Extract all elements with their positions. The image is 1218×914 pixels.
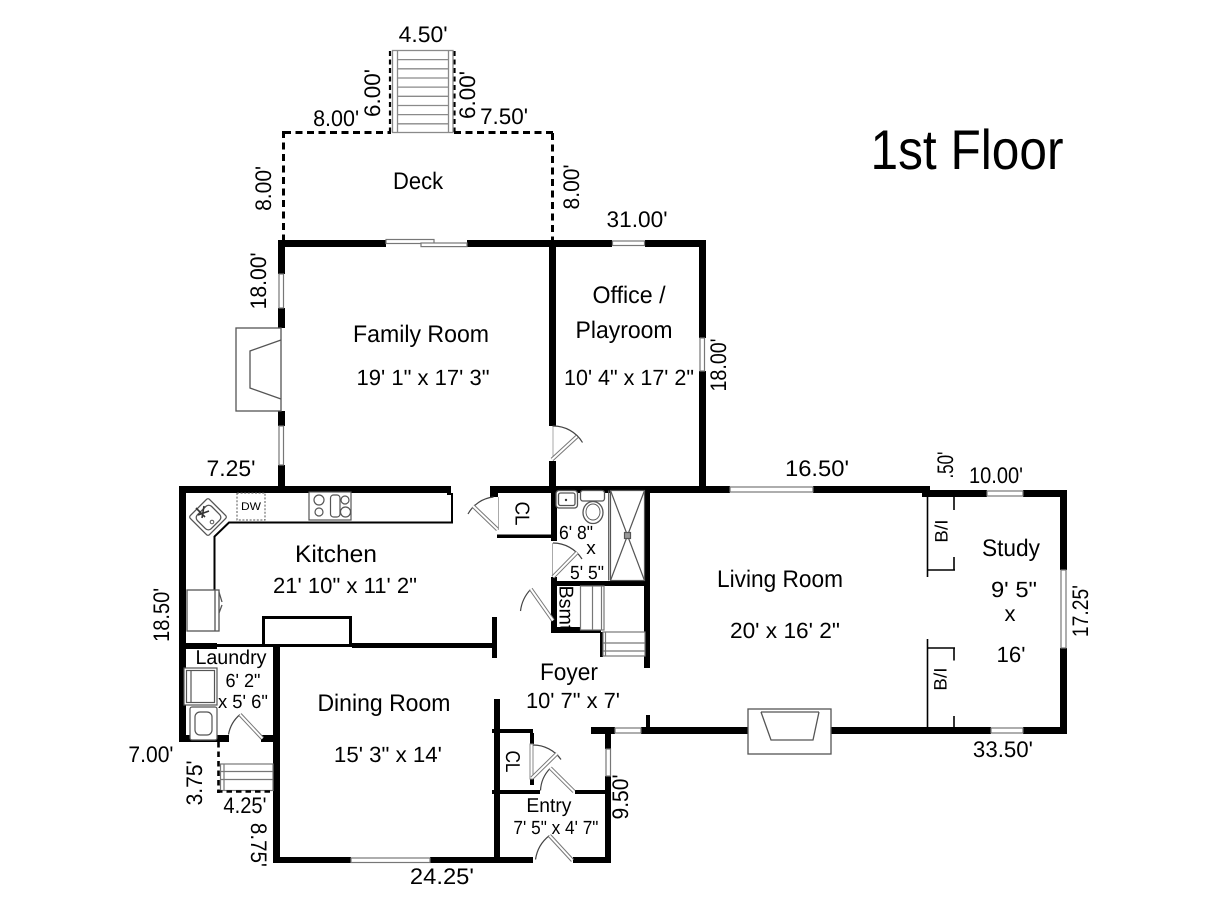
- svg-text:Kitchen: Kitchen: [295, 541, 377, 568]
- svg-text:7.50': 7.50': [480, 104, 528, 129]
- svg-text:9.50': 9.50': [608, 774, 633, 819]
- svg-text:16': 16': [996, 642, 1025, 667]
- svg-text:24.25': 24.25': [410, 864, 474, 889]
- svg-text:3.75': 3.75': [182, 760, 207, 805]
- svg-text:Foyer: Foyer: [540, 659, 598, 686]
- svg-text:Living Room: Living Room: [717, 566, 843, 593]
- svg-text:10' 7" x 7': 10' 7" x 7': [526, 688, 620, 713]
- svg-text:31.00': 31.00': [607, 207, 668, 232]
- svg-text:CL: CL: [510, 501, 532, 525]
- svg-text:Playroom: Playroom: [576, 317, 673, 344]
- svg-text:6.00': 6.00': [455, 71, 480, 119]
- svg-text:17.25': 17.25': [1068, 585, 1093, 637]
- svg-text:x 5' 6": x 5' 6": [218, 692, 268, 713]
- svg-text:18.50': 18.50': [149, 588, 174, 642]
- svg-text:Dining Room: Dining Room: [317, 690, 450, 717]
- svg-text:5' 5": 5' 5": [570, 563, 604, 584]
- svg-text:6' 2": 6' 2": [225, 671, 260, 692]
- svg-text:8.00': 8.00': [313, 106, 359, 131]
- svg-text:Entry: Entry: [526, 795, 571, 817]
- svg-text:8.00': 8.00': [251, 166, 276, 211]
- svg-text:Office /: Office /: [593, 282, 666, 309]
- svg-text:18.00': 18.00': [706, 339, 731, 392]
- svg-text:33.50': 33.50': [973, 737, 1033, 762]
- svg-text:21' 10" x 11' 2": 21' 10" x 11' 2": [273, 573, 417, 598]
- svg-text:9' 5": 9' 5": [991, 577, 1037, 602]
- svg-text:x: x: [1004, 601, 1015, 626]
- svg-text:B/I: B/I: [930, 668, 950, 691]
- svg-text:6.00': 6.00': [360, 69, 385, 117]
- svg-text:Family Room: Family Room: [353, 321, 489, 348]
- svg-text:7.00': 7.00': [128, 742, 173, 767]
- svg-text:10.00': 10.00': [969, 463, 1023, 488]
- svg-text:10' 4" x 17' 2": 10' 4" x 17' 2": [564, 365, 694, 390]
- svg-text:.50': .50': [933, 452, 958, 479]
- svg-text:20' x 16' 2": 20' x 16' 2": [730, 618, 840, 643]
- svg-text:4.25': 4.25': [223, 793, 266, 818]
- svg-text:1st Floor: 1st Floor: [870, 118, 1063, 181]
- svg-text:4.50': 4.50': [399, 22, 448, 47]
- svg-text:18.00': 18.00': [246, 252, 271, 309]
- svg-text:7' 5" x 4' 7": 7' 5" x 4' 7": [513, 818, 598, 839]
- svg-text:CL: CL: [501, 750, 523, 772]
- svg-text:8.75': 8.75': [246, 823, 271, 867]
- svg-text:B/I: B/I: [931, 520, 951, 543]
- svg-text:Bsmt: Bsmt: [554, 585, 576, 630]
- svg-text:8.00': 8.00': [559, 164, 584, 209]
- svg-text:15' 3" x 14': 15' 3" x 14': [334, 742, 442, 767]
- svg-text:16.50': 16.50': [785, 456, 849, 481]
- svg-text:19' 1" x 17' 3": 19' 1" x 17' 3": [357, 365, 490, 390]
- svg-text:Laundry: Laundry: [195, 647, 266, 669]
- svg-text:DW: DW: [241, 501, 262, 513]
- svg-text:Deck: Deck: [393, 168, 444, 195]
- svg-text:7.25': 7.25': [206, 456, 255, 481]
- svg-text:Study: Study: [982, 535, 1040, 562]
- svg-text:x: x: [586, 538, 596, 559]
